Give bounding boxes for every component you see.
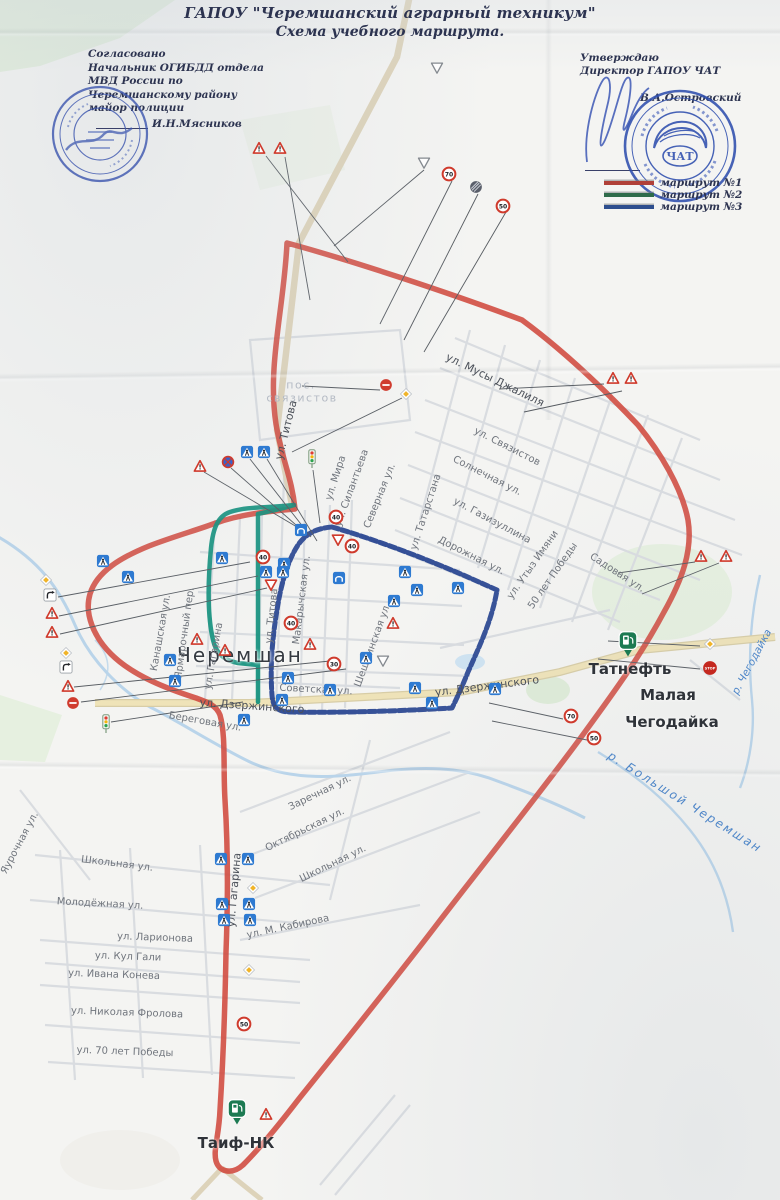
legend-label: маршрут №2	[660, 189, 742, 201]
route-3-swatch	[604, 205, 654, 209]
page-subtitle: Схема учебного маршрута.	[0, 24, 780, 40]
legend-item-route2: маршрут №2	[604, 189, 742, 201]
signature-line	[585, 170, 640, 171]
approval-right-name: В.А.Островский	[640, 92, 741, 104]
legend-item-route3: маршрут №3	[604, 201, 742, 213]
signature-line	[96, 128, 148, 129]
street-grid	[20, 330, 742, 1195]
route-1-swatch	[604, 181, 654, 185]
legend-item-route1: маршрут №1	[604, 177, 742, 189]
page-title: ГАПОУ "Черемшанский аграрный техникум"	[0, 4, 780, 22]
route-1-line	[88, 243, 689, 1171]
legend-label: маршрут №3	[660, 201, 742, 213]
route-2-swatch	[604, 193, 654, 197]
approval-right-line2: Директор ГАПОУ ЧАТ	[580, 65, 720, 79]
scanned-route-map-page: ГАПОУ "Черемшанский аграрный техникум" С…	[0, 0, 780, 1200]
approval-left-text: Согласовано Начальник ОГИБДД отдела МВД …	[88, 48, 264, 116]
approval-left-name: И.Н.Мясников	[152, 118, 242, 130]
legend-label: маршрут №1	[660, 177, 742, 189]
approval-right-line1: Утверждаю	[580, 52, 659, 66]
route-legend: маршрут №1 маршрут №2 маршрут №3	[604, 177, 742, 213]
